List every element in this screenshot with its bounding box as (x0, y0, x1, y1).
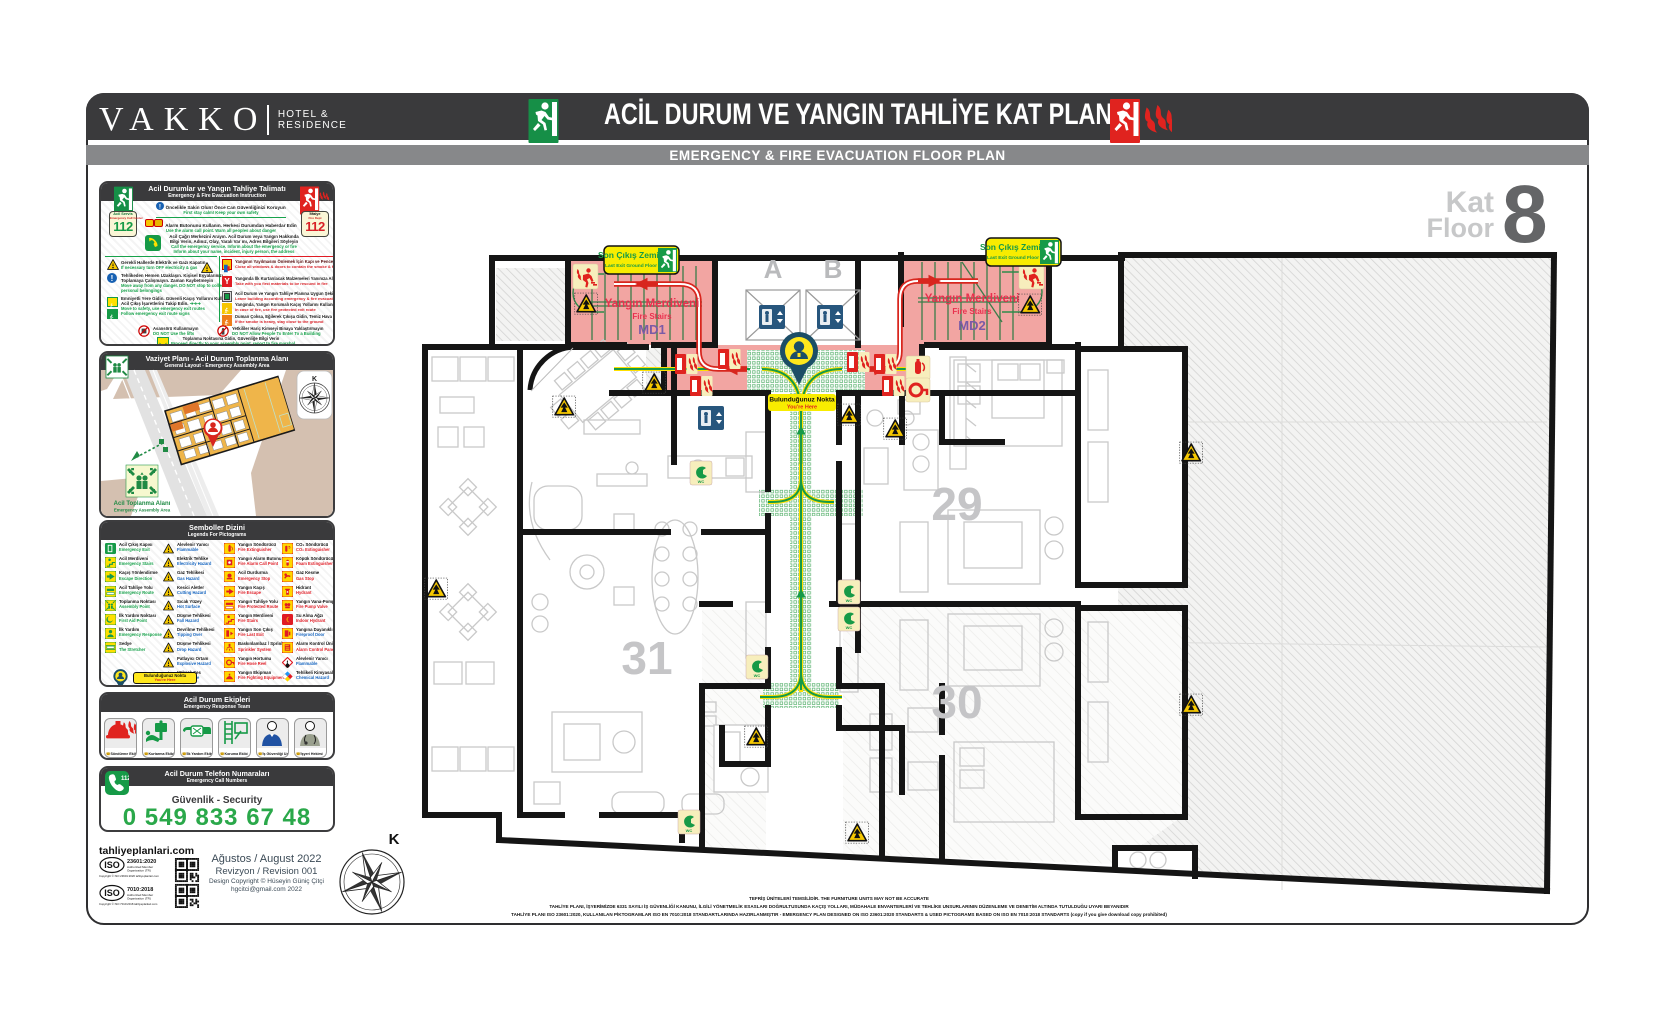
svg-text:Copyright © ISO 7010:2018 tahl: Copyright © ISO 7010:2018 tahliyeplanlar… (99, 902, 158, 906)
svg-text:MD1: MD1 (638, 322, 665, 337)
svg-text:30: 30 (931, 676, 982, 728)
svg-text:Acil Toplanma Alanı: Acil Toplanma Alanı (114, 501, 171, 507)
svg-text:5: 5 (288, 546, 290, 550)
svg-text:Bulunduğunuz Nokta: Bulunduğunuz Nokta (769, 397, 835, 404)
svg-text:Fire Stairs: Fire Stairs (952, 307, 992, 316)
svg-text:31: 31 (621, 632, 672, 684)
svg-text:29: 29 (931, 478, 982, 530)
svg-text:MD2: MD2 (958, 318, 985, 333)
svg-text:Organization (TR): Organization (TR) (127, 869, 151, 873)
svg-text:Last Exit Ground Floor: Last Exit Ground Floor (605, 263, 657, 269)
svg-text:112: 112 (121, 776, 129, 782)
svg-text:ISO: ISO (104, 888, 120, 898)
svg-text:Emergency Assembly Area: Emergency Assembly Area (114, 508, 171, 513)
svg-text:K: K (312, 376, 317, 383)
svg-text:!: ! (111, 274, 114, 283)
svg-text:B: B (824, 254, 843, 284)
svg-text:!: ! (159, 203, 161, 210)
svg-text:Copyright © ISO 23601:2020 tah: Copyright © ISO 23601:2020 tahliyeplanla… (99, 874, 160, 878)
svg-text:ISO: ISO (104, 860, 120, 870)
svg-text:Organization (TR): Organization (TR) (127, 897, 151, 901)
svg-text:Yangın Merdiveni: Yangın Merdiveni (925, 293, 1020, 305)
svg-text:Son Çıkış Zemin: Son Çıkış Zemin (598, 250, 664, 260)
svg-text:You're Here: You're Here (787, 405, 817, 411)
svg-text:Fire Stairs: Fire Stairs (632, 312, 672, 321)
svg-text:Last Exit Ground Floor: Last Exit Ground Floor (987, 255, 1039, 261)
svg-text:K: K (389, 831, 400, 848)
svg-text:Son Çıkış Zemin: Son Çıkış Zemin (980, 242, 1046, 252)
svg-text:Yangın Merdiveni: Yangın Merdiveni (605, 298, 700, 310)
svg-text:A: A (764, 254, 783, 284)
